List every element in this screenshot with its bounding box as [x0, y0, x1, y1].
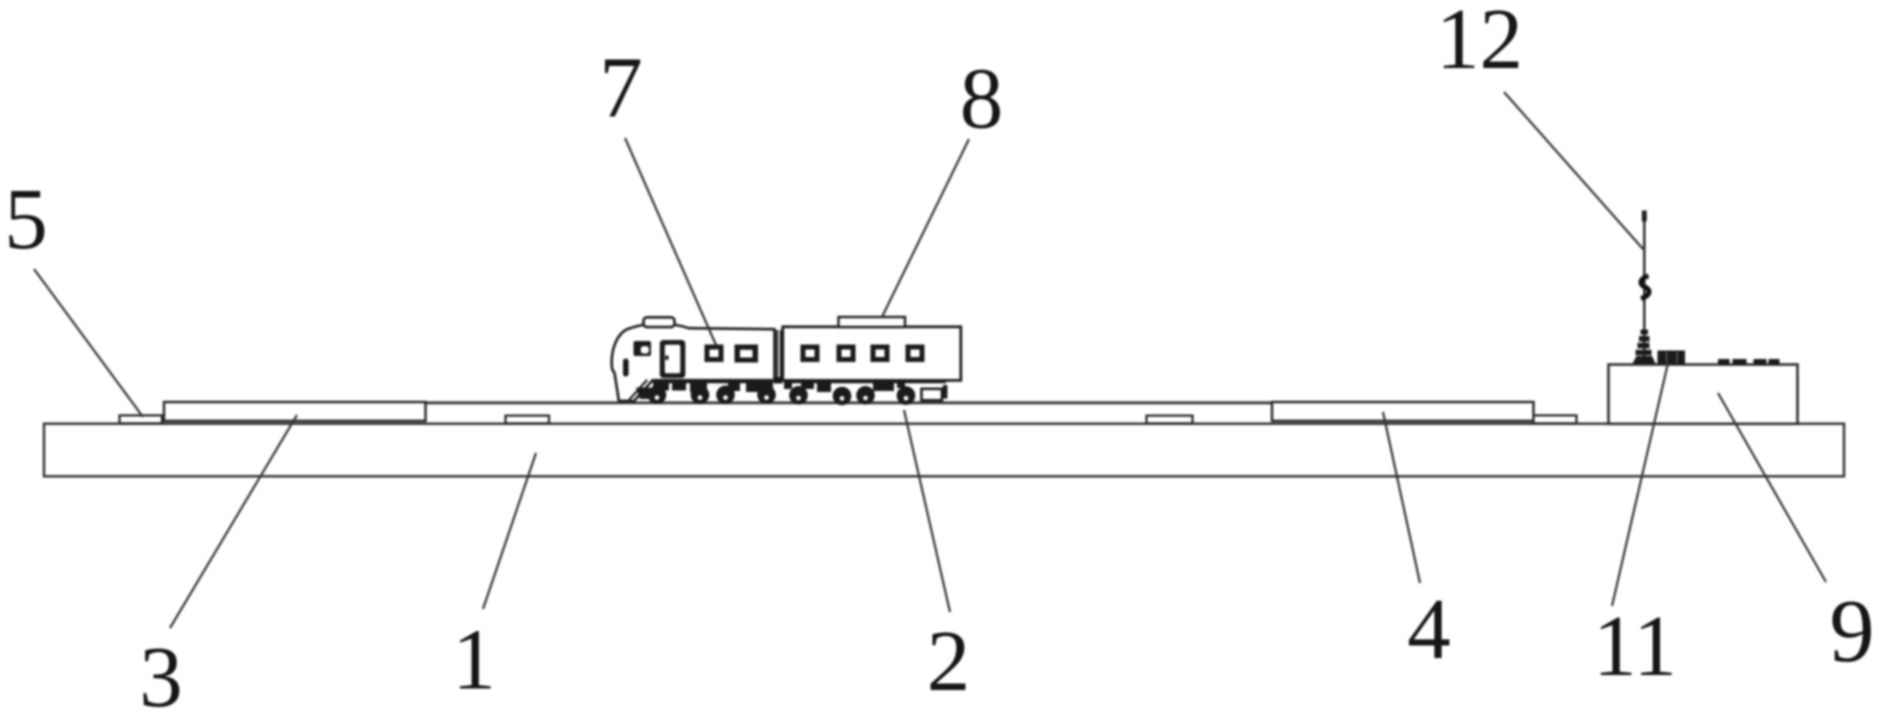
- svg-text:7: 7: [599, 39, 643, 136]
- svg-text:1: 1: [452, 611, 496, 708]
- svg-text:11: 11: [1593, 597, 1677, 694]
- svg-text:5: 5: [4, 170, 48, 267]
- svg-text:9: 9: [1830, 582, 1875, 681]
- svg-text:2: 2: [927, 612, 971, 709]
- svg-text:3: 3: [139, 628, 183, 714]
- svg-text:4: 4: [1407, 580, 1451, 677]
- svg-text:8: 8: [960, 50, 1004, 147]
- svg-text:12: 12: [1436, 0, 1523, 87]
